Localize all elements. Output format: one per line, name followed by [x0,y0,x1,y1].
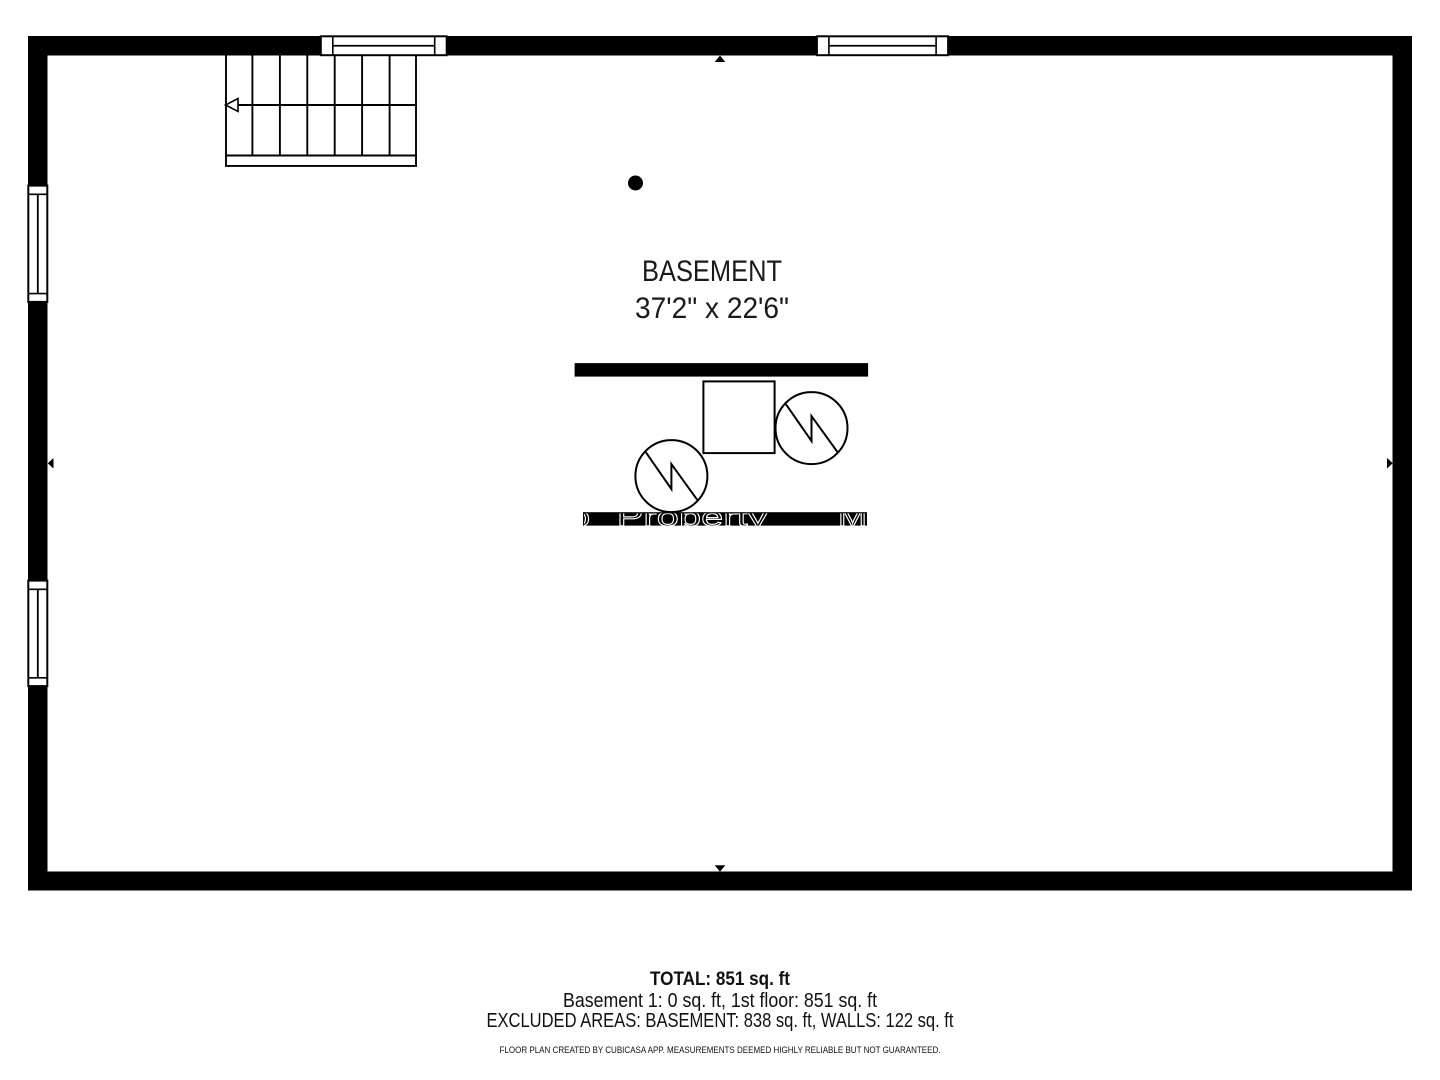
svg-text:TOTAL: 851 sq. ft: TOTAL: 851 sq. ft [650,969,791,990]
svg-text:37'2" x 22'6": 37'2" x 22'6" [635,292,789,325]
svg-text:FLOOR PLAN CREATED BY CUBICASA: FLOOR PLAN CREATED BY CUBICASA APP. MEAS… [500,1045,941,1055]
svg-text:Basement 1: 0 sq. ft, 1st floo: Basement 1: 0 sq. ft, 1st floor: 851 sq.… [563,990,877,1012]
svg-text:EXCLUDED AREAS: BASEMENT: 838: EXCLUDED AREAS: BASEMENT: 838 sq. ft, WA… [487,1010,954,1032]
svg-text:BASEMENT: BASEMENT [642,255,782,288]
